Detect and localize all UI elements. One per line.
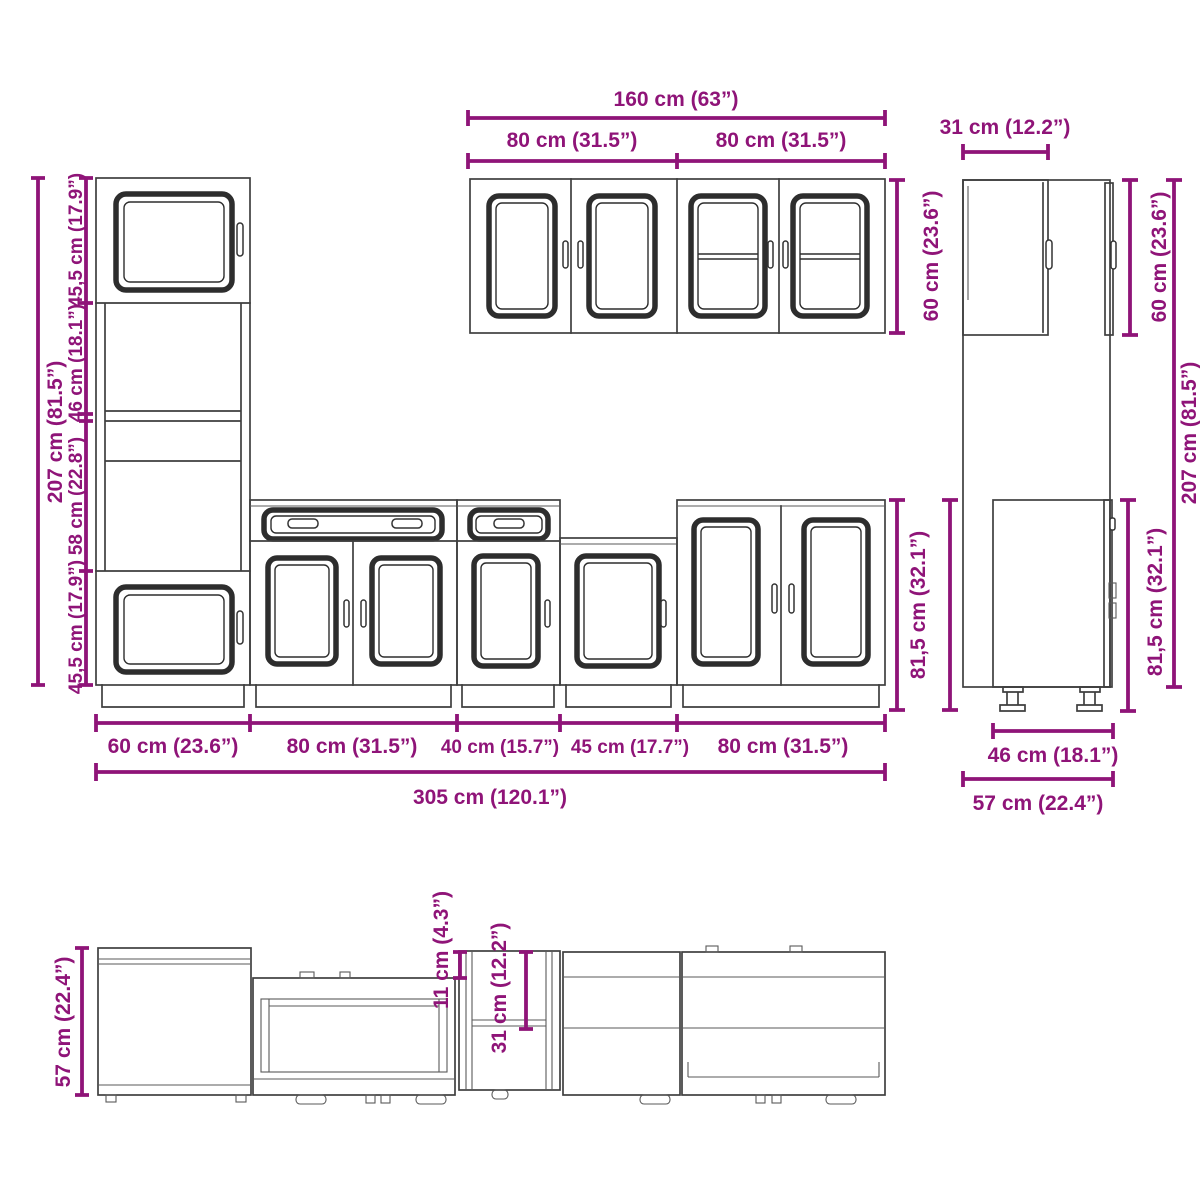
- side-adjustable-feet: [1000, 687, 1102, 711]
- dim-label-tall-segment-middle: 58 cm (22.8”): [66, 437, 87, 555]
- top-view-unit-5: [682, 946, 885, 1104]
- tall-top-door-handle: [237, 223, 243, 256]
- dim-label-base-width-2: 80 cm (31.5”): [287, 735, 418, 758]
- top-view-dimensions: 57 cm (22.4”) 11 cm (4.3”) 31 cm (12.2”): [52, 891, 533, 1095]
- wall-door-handle-3: [768, 241, 773, 268]
- wall-door-panel-2: [589, 196, 655, 316]
- side-wall-cabinet-profile: [963, 180, 1048, 335]
- tall-oven-compartment: [96, 303, 250, 571]
- dim-label-base-width-5: 80 cm (31.5”): [718, 735, 849, 758]
- wall-door-handle-4: [783, 241, 788, 268]
- tall-cabinet-side-view: [963, 180, 1116, 711]
- dim-label-side-wall-height: 60 cm (23.6”): [1148, 192, 1171, 323]
- wall-door-handle-2: [578, 241, 583, 268]
- dim-label-tall-segment-top: 45,5 cm (17.9”): [66, 173, 87, 307]
- dim-label-tall-segment-bottom: 45,5 cm (17.9”): [66, 560, 87, 694]
- base-cabinet-45: [560, 538, 677, 707]
- tall-plinth: [102, 685, 244, 707]
- top-view-unit-1: [98, 948, 251, 1102]
- dim-label-side-top-depth: 31 cm (12.2”): [940, 116, 1071, 139]
- dim-label-base-width-1: 60 cm (23.6”): [108, 735, 239, 758]
- base-cabinet-80-doors: [677, 500, 885, 707]
- tall-top-door-panel: [116, 194, 232, 290]
- wall-door-panel-1: [489, 196, 555, 316]
- side-wall-door-handle: [1046, 240, 1052, 269]
- dim-label-base-height: 81,5 cm (32.1”): [907, 531, 930, 679]
- dim-label-side-total-depth: 57 cm (22.4”): [973, 792, 1104, 815]
- base-cabinet-40-drawer: [457, 500, 560, 707]
- dim-label-base-total-width: 305 cm (120.1”): [413, 786, 567, 809]
- wall-cabinets-dimensions: 160 cm (63”) 80 cm (31.5”) 80 cm (31.5”)…: [468, 88, 943, 333]
- dim-label-base-width-4: 45 cm (17.7”): [571, 737, 689, 758]
- dim-label-top-front-offset: 11 cm (4.3”): [430, 891, 453, 1009]
- dim-label-base-width-3: 40 cm (15.7”): [441, 737, 559, 758]
- wall-glass-door-panel-4: [793, 196, 867, 316]
- tall-bottom-door-panel: [116, 587, 232, 672]
- side-view-dimensions: 31 cm (12.2”) 60 cm (23.6”) 207 cm (81.5…: [940, 116, 1200, 815]
- tall-bottom-door-handle: [237, 611, 243, 644]
- dim-label-side-base-height: 81,5 cm (32.1”): [1144, 528, 1167, 676]
- dim-label-wall-right-width: 80 cm (31.5”): [716, 129, 847, 152]
- dim-label-tall-segment-oven: 46 cm (18.1”): [66, 304, 87, 422]
- dim-label-side-total-height: 207 cm (81.5”): [1178, 362, 1200, 504]
- dim-label-tall-total-height: 207 cm (81.5”): [44, 361, 67, 503]
- base-cabinet-80-drawer: [250, 500, 457, 707]
- dim-label-side-base-depth: 46 cm (18.1”): [988, 744, 1119, 767]
- dim-label-wall-height: 60 cm (23.6”): [920, 191, 943, 322]
- wall-glass-door-panel-3: [691, 196, 765, 316]
- base-cabinets-front-view: [250, 500, 885, 707]
- dim-label-wall-total-width: 160 cm (63”): [614, 88, 739, 111]
- wall-cabinets-front-view: [470, 179, 885, 333]
- diagram-canvas: 207 cm (81.5”) 45,5 cm (17.9”) 46 cm (18…: [0, 0, 1200, 1200]
- tall-cabinet-front-view: [96, 178, 250, 707]
- kitchen-dimension-diagram: 207 cm (81.5”) 45,5 cm (17.9”) 46 cm (18…: [0, 0, 1200, 1200]
- dim-label-wall-left-width: 80 cm (31.5”): [507, 129, 638, 152]
- dim-label-top-depth: 57 cm (22.4”): [52, 957, 75, 1088]
- wall-door-handle-1: [563, 241, 568, 268]
- top-view-unit-2: [253, 972, 455, 1104]
- side-base-cabinet-profile: [993, 500, 1110, 687]
- tall-cabinet-dimensions: 207 cm (81.5”) 45,5 cm (17.9”) 46 cm (18…: [31, 173, 93, 694]
- top-view-unit-4: [563, 952, 680, 1104]
- dim-label-top-wall-depth: 31 cm (12.2”): [488, 923, 511, 1054]
